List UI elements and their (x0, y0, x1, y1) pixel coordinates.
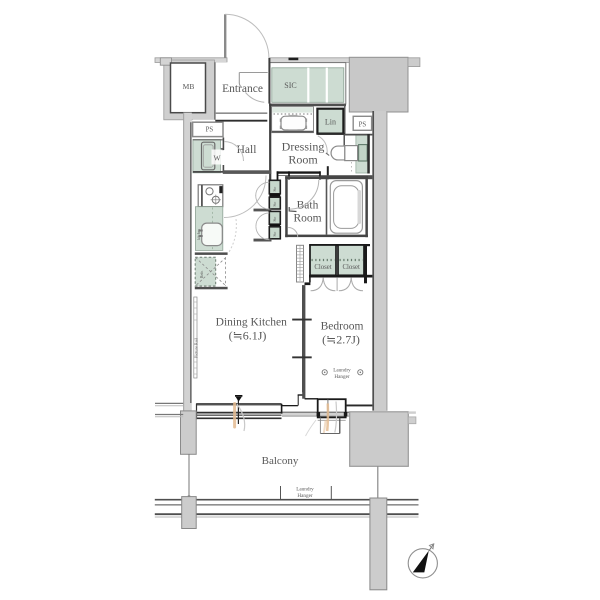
svg-text:Entrance: Entrance (222, 83, 263, 95)
svg-text:Dining Kitchen: Dining Kitchen (216, 317, 287, 329)
svg-text:Bath: Bath (297, 200, 319, 212)
svg-text:SIC: SIC (284, 81, 296, 90)
svg-text:Lin: Lin (325, 118, 336, 127)
svg-text:PS: PS (206, 126, 214, 133)
svg-text:(≒2.7J): (≒2.7J) (322, 333, 360, 347)
svg-text:Laundry: Laundry (333, 368, 351, 374)
svg-text:Hanger: Hanger (334, 374, 350, 380)
svg-text:Sto: Sto (273, 217, 277, 222)
svg-text:kitchen: kitchen (197, 229, 201, 240)
svg-text:Room: Room (288, 153, 318, 167)
svg-text:Hanger: Hanger (297, 493, 313, 499)
svg-text:(≒6.1J): (≒6.1J) (229, 329, 267, 343)
svg-text:Refr.: Refr. (200, 270, 204, 278)
svg-text:Sto: Sto (273, 232, 277, 237)
svg-text:Bedroom: Bedroom (321, 321, 364, 333)
svg-text:Closet: Closet (314, 264, 331, 271)
svg-text:Sto: Sto (273, 202, 277, 207)
svg-text:W: W (213, 154, 221, 163)
svg-text:PS: PS (359, 121, 367, 128)
svg-text:Dressing: Dressing (282, 140, 325, 154)
svg-text:Room: Room (293, 213, 321, 225)
svg-text:Balcony: Balcony (262, 455, 299, 467)
svg-text:Closet: Closet (343, 264, 360, 271)
svg-text:Laundry: Laundry (296, 487, 314, 493)
svg-text:Picture Rail: Picture Rail (194, 337, 199, 358)
svg-text:MB: MB (183, 82, 195, 91)
svg-text:Sto: Sto (273, 187, 277, 192)
